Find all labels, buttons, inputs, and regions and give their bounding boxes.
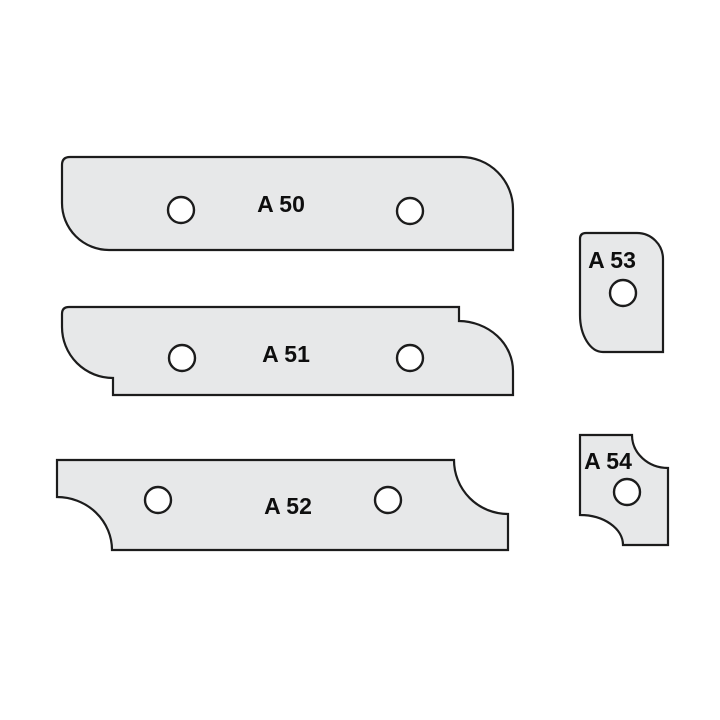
knife-a52: A 52 bbox=[57, 460, 508, 550]
knife-a54: A 54 bbox=[580, 435, 668, 545]
mounting-hole bbox=[375, 487, 401, 513]
knife-a51: A 51 bbox=[62, 307, 513, 395]
mounting-hole bbox=[168, 197, 194, 223]
knife-a50: A 50 bbox=[62, 157, 513, 250]
knife-a52-label: A 52 bbox=[264, 493, 312, 519]
knife-a50-label: A 50 bbox=[257, 191, 305, 217]
knife-a53-label: A 53 bbox=[588, 247, 636, 273]
mounting-hole bbox=[610, 280, 636, 306]
mounting-hole bbox=[145, 487, 171, 513]
mounting-hole bbox=[614, 479, 640, 505]
knife-a51-label: A 51 bbox=[262, 341, 310, 367]
knife-a54-label: A 54 bbox=[584, 448, 632, 474]
mounting-hole bbox=[397, 345, 423, 371]
mounting-hole bbox=[397, 198, 423, 224]
mounting-hole bbox=[169, 345, 195, 371]
knife-a53: A 53 bbox=[580, 233, 663, 352]
knife-profile-diagram: A 50 A 51 A 52 A 53 A 54 bbox=[0, 0, 720, 720]
